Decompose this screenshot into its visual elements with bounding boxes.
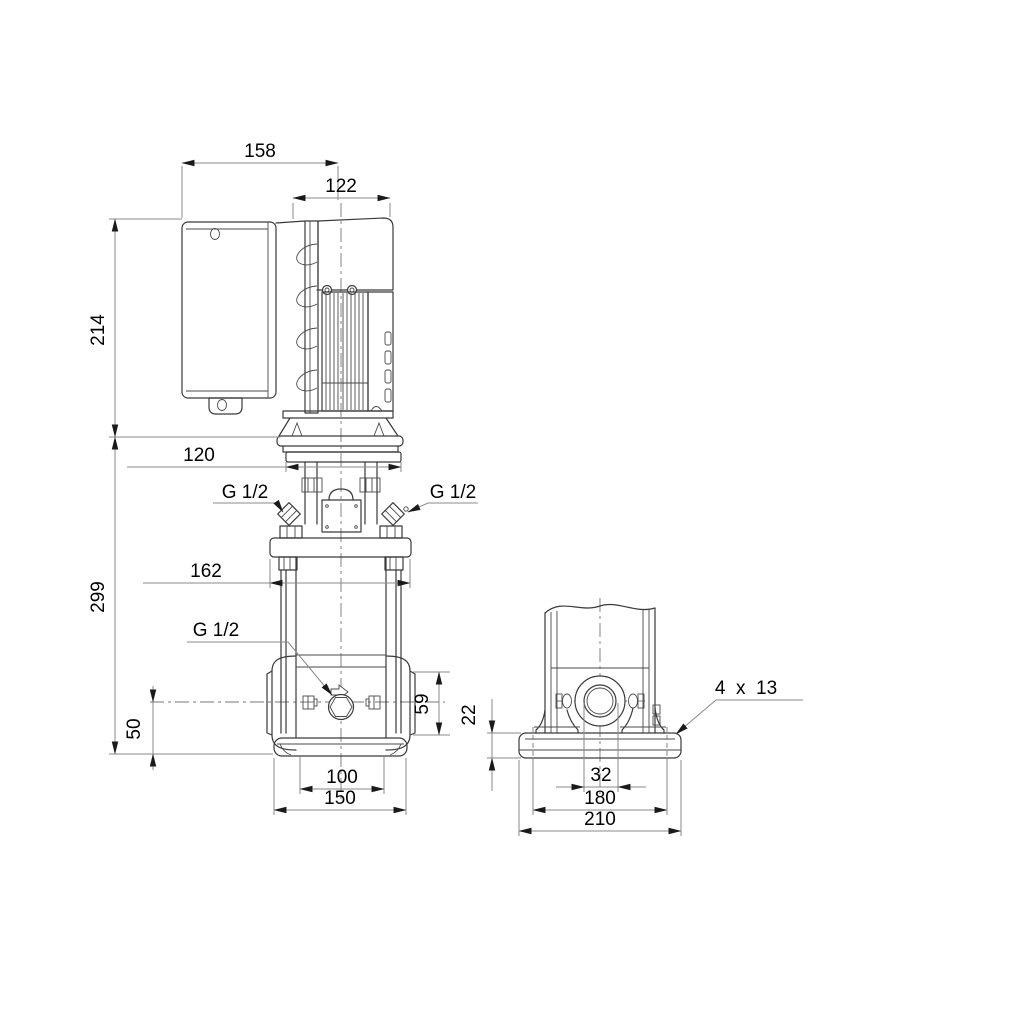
motor-clamp-column	[276, 221, 318, 413]
dim-100-label: 100	[326, 767, 358, 788]
g-half-top-right-label: G 1/2	[430, 482, 476, 503]
dimensions: 158 122 214 299 120 162 50 59 100	[88, 141, 803, 836]
g-half-drain-label: G 1/2	[193, 620, 239, 641]
dim-162-label: 162	[190, 561, 222, 582]
side-plug-left	[303, 696, 314, 709]
clip-right	[629, 694, 638, 708]
dim-120-label: 120	[183, 445, 215, 466]
side-port-flange	[556, 676, 660, 726]
gauge-plug-left	[278, 503, 301, 526]
dim-150-label: 150	[324, 788, 356, 809]
bolt-hole-leader: 4 x 13	[676, 678, 803, 734]
weep-hole-right	[374, 423, 384, 436]
dim-59-label: 59	[412, 693, 433, 714]
dim-210-label: 210	[584, 809, 616, 830]
vent-slot	[385, 332, 391, 345]
vent-slot	[385, 370, 391, 383]
g-half-top-left-label: G 1/2	[222, 482, 268, 503]
weep-hole-left	[292, 423, 302, 436]
screw-hole-bottom	[218, 400, 227, 411]
vent-slot	[385, 351, 391, 364]
dim-122-label: 122	[325, 176, 357, 197]
dim-299-label: 299	[88, 581, 109, 613]
bolt-holes-label: 4 x 13	[715, 678, 777, 699]
plug-tip	[404, 507, 408, 511]
dim-214-label: 214	[88, 314, 109, 346]
dim-22-label: 22	[459, 704, 480, 725]
g-half-leader-top-right: G 1/2	[408, 482, 478, 512]
clip-left	[563, 694, 572, 708]
dim-180-label: 180	[584, 788, 616, 809]
dim-50-label: 50	[124, 718, 145, 739]
control-box	[182, 222, 276, 414]
screw-hole-top	[211, 229, 220, 240]
motor-top-housing	[317, 218, 393, 295]
latch	[653, 705, 660, 714]
control-box-tab	[209, 398, 242, 414]
front-view	[150, 203, 445, 799]
motor-fins	[322, 292, 368, 411]
gauge-plug-right	[382, 503, 405, 526]
drawing-canvas: 158 122 214 299 120 162 50 59 100	[0, 0, 1024, 1024]
motor-flange-bell	[277, 411, 403, 462]
mounting-plate	[270, 538, 411, 557]
pump-base-front	[274, 738, 407, 756]
dim-32-label: 32	[590, 765, 611, 786]
g-half-leader-top-left: G 1/2	[213, 482, 283, 512]
dim-158-label: 158	[244, 141, 276, 162]
g-half-leader-drain: G 1/2	[187, 620, 332, 695]
side-plug-right	[369, 696, 380, 709]
vent-slot	[385, 389, 391, 402]
pump-dimensional-drawing: 158 122 214 299 120 162 50 59 100	[0, 0, 1024, 1024]
motor-end-cover	[368, 292, 393, 411]
